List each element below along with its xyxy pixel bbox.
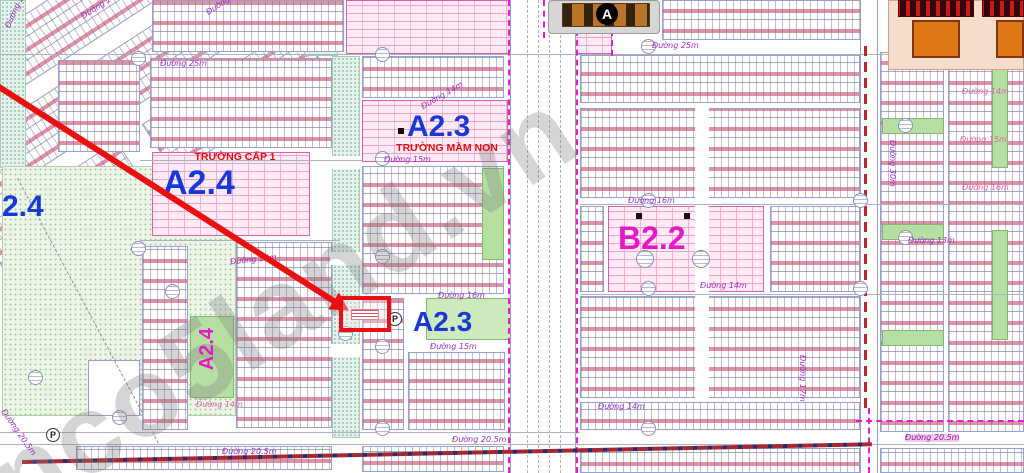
- plot-block: [880, 448, 1024, 473]
- green-strip: [882, 118, 944, 134]
- parking-marker: P: [46, 428, 60, 442]
- plot-block: [770, 206, 860, 292]
- square-marker: [636, 213, 642, 219]
- junction-symbol: [853, 281, 868, 296]
- road-label: Đường 14m: [598, 403, 645, 411]
- green-strip: [992, 230, 1008, 340]
- junction-symbol: [131, 51, 146, 66]
- zone-label-a23-top: A2.3: [407, 112, 470, 142]
- building-a-marker: A: [596, 3, 618, 25]
- tower-label-banner: [982, 0, 1024, 17]
- zone-label-kindergarten: TRƯỜNG MẦM NON: [372, 143, 522, 154]
- road-label: Đường 20.5m: [905, 434, 959, 442]
- road-label: Đường 17m: [798, 355, 806, 402]
- highlighted-plot-box: [339, 296, 391, 332]
- road-label: Đường 16m: [438, 292, 485, 300]
- tower-label-banner: [898, 0, 974, 17]
- road-label: Đường 14m: [196, 401, 243, 409]
- plot-block: [58, 60, 140, 152]
- plot-block: [580, 296, 860, 398]
- square-marker: [684, 213, 690, 219]
- road-edge: [0, 54, 1024, 55]
- plot-block: [580, 206, 604, 292]
- junction-symbol: [375, 421, 390, 436]
- zone-label-a24-vertical: A2.4: [197, 328, 217, 370]
- boundary-dash: [508, 0, 510, 473]
- road-label: Đường 25m: [160, 60, 207, 68]
- road-label: Đường 30m: [888, 140, 896, 187]
- junction-symbol: [375, 47, 390, 62]
- green-strip: [992, 58, 1008, 168]
- road-label: Đường 20.5m: [452, 436, 506, 444]
- zone-label-a24-clipped: 2.4: [2, 192, 44, 222]
- road-label: Đường 15m: [384, 156, 431, 164]
- project-boundary-v: [864, 40, 867, 408]
- boundary-dash: [856, 420, 1024, 422]
- zoning-map: nco5land.vn TRƯỜNG CẤP 1 A2.4 A2.3 TRƯỜN…: [0, 0, 1024, 473]
- park-symbol: [28, 370, 43, 385]
- junction-symbol: [641, 281, 656, 296]
- b22-symbol: [692, 250, 710, 268]
- plot-block: [580, 55, 860, 103]
- tower-footprint: [996, 20, 1024, 58]
- boundary-dash: [543, 0, 545, 38]
- junction-symbol: [131, 241, 146, 256]
- plot-block: [580, 108, 860, 198]
- plot-block: [152, 0, 344, 52]
- junction-symbol: [641, 421, 656, 436]
- road-gap: [330, 344, 362, 357]
- square-marker: [398, 128, 404, 134]
- road-label: Đường 15m: [430, 343, 477, 351]
- junction-symbol: [375, 339, 390, 354]
- boundary-dash: [868, 408, 870, 473]
- main-road: [510, 0, 576, 473]
- road-label: Đường 20.5m: [222, 448, 276, 456]
- road-label: Đường 14m: [962, 88, 1009, 96]
- highlighted-plot: [351, 309, 379, 320]
- plot-block: [662, 0, 862, 40]
- zone-label-a23-mid: A2.3: [413, 308, 472, 336]
- road-label: Đường 13m: [908, 237, 955, 245]
- plot-block: [580, 448, 860, 473]
- green-strip: [882, 330, 944, 346]
- road-gap: [330, 156, 362, 169]
- plot-block: [150, 58, 332, 148]
- junction-symbol: [853, 193, 868, 208]
- plot-block: [948, 52, 1024, 432]
- plot-block: [408, 352, 505, 430]
- plot-block: [362, 56, 504, 98]
- right-road: [860, 0, 878, 473]
- road-label: Đường 15m: [960, 136, 1007, 144]
- park-symbol: [165, 284, 180, 299]
- junction-symbol: [898, 118, 913, 133]
- road-label: Đường 14m: [700, 282, 747, 290]
- zone-label-school: TRƯỜNG CẤP 1: [175, 152, 295, 163]
- zone-label-b22: B2.2: [618, 222, 686, 254]
- road-label: Đường 16m: [962, 184, 1009, 192]
- boundary-dash: [576, 0, 578, 473]
- road-label: Đường 25m: [652, 42, 699, 50]
- tower-footprint: [912, 20, 960, 58]
- road-label: Đường 16m: [628, 197, 675, 205]
